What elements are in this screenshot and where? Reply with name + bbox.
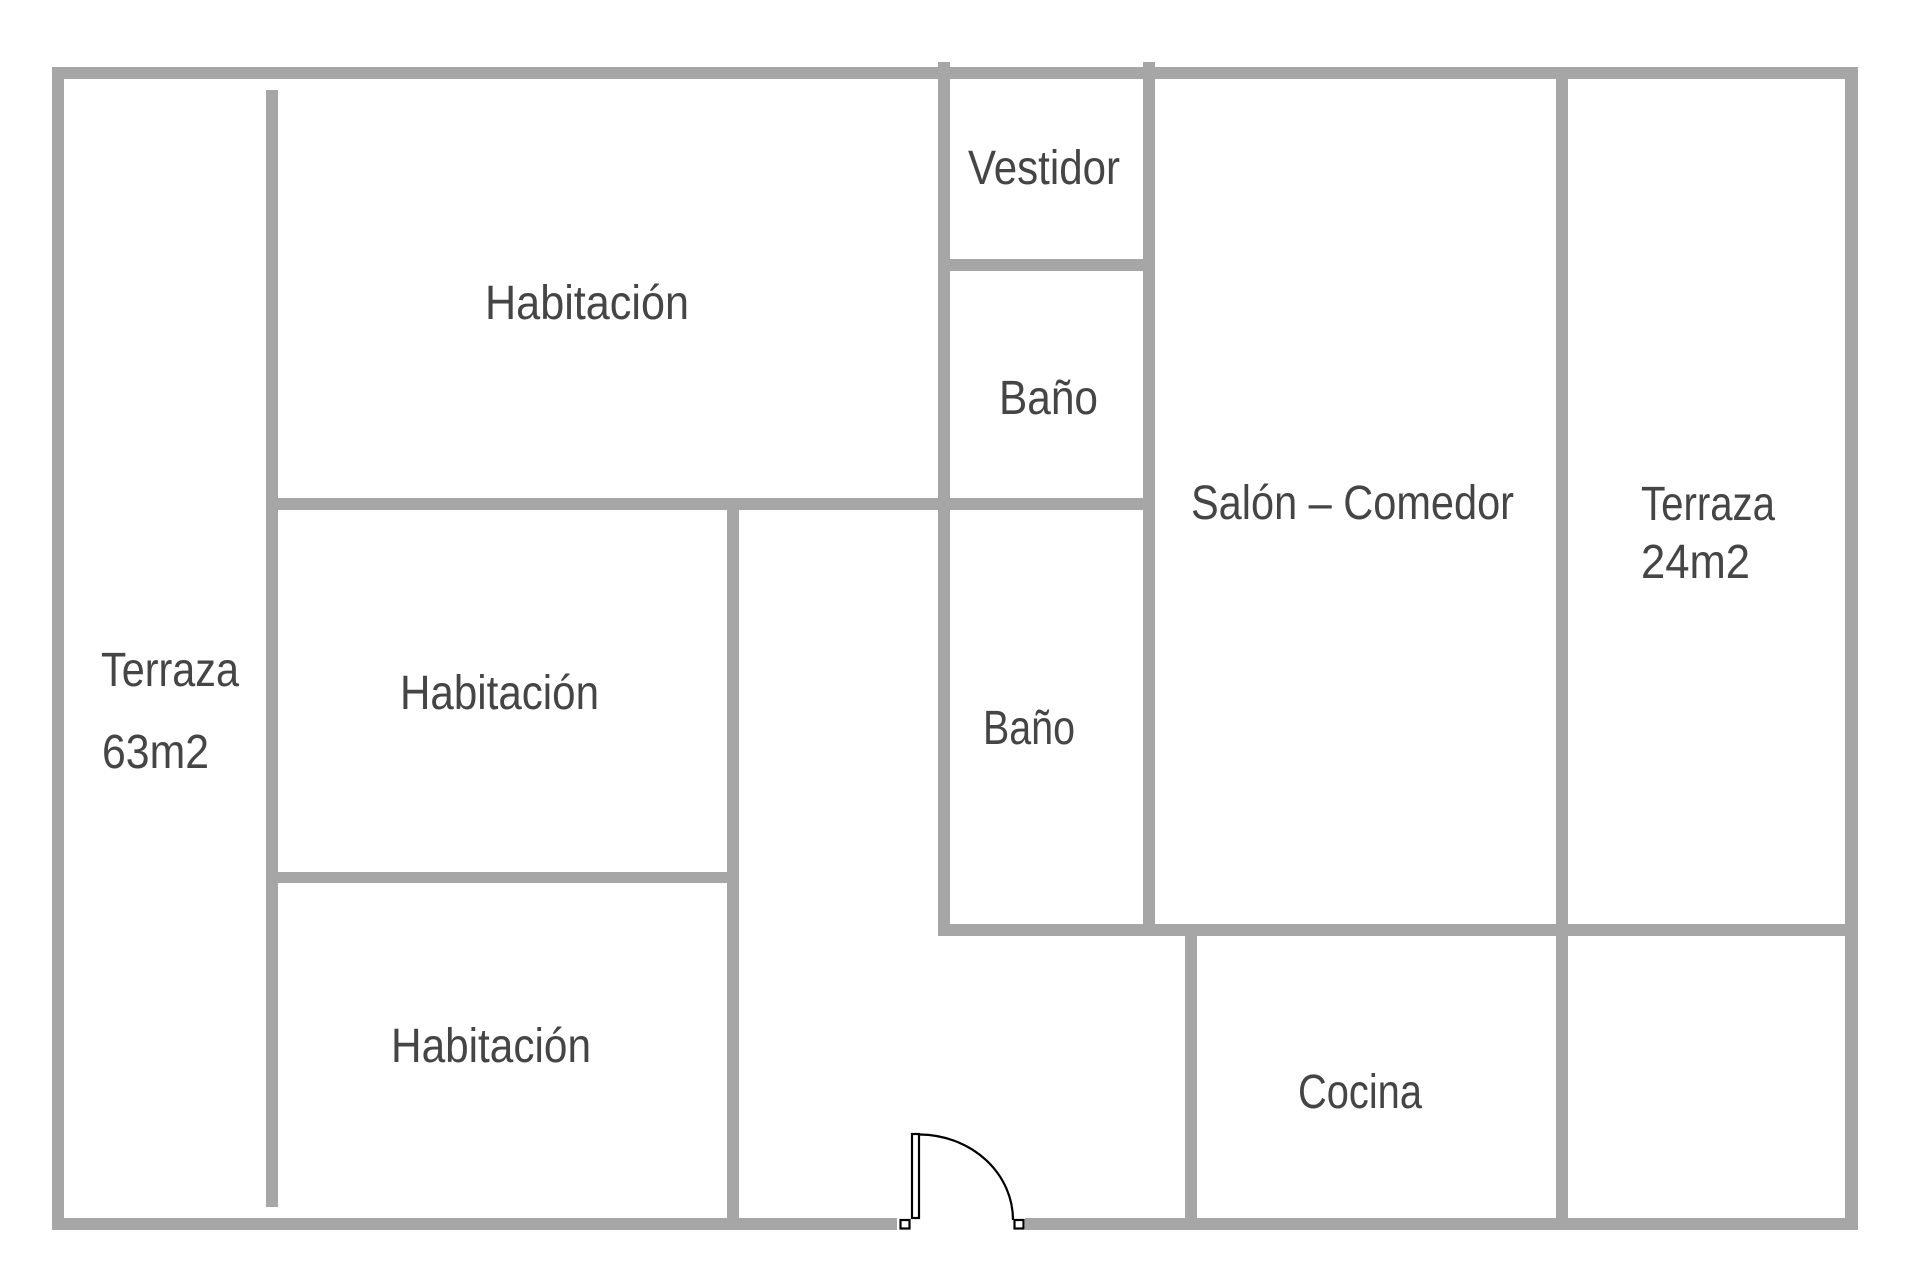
svg-text:Terraza: Terraza: [1641, 477, 1775, 531]
svg-text:Salón – Comedor: Salón – Comedor: [1191, 476, 1514, 530]
svg-text:63m2: 63m2: [102, 725, 209, 779]
svg-text:Habitación: Habitación: [400, 666, 599, 720]
svg-text:Baño: Baño: [999, 371, 1098, 425]
svg-text:Habitación: Habitación: [391, 1019, 591, 1073]
svg-text:Habitación: Habitación: [485, 276, 689, 330]
svg-text:Vestidor: Vestidor: [968, 141, 1120, 195]
svg-text:Terraza: Terraza: [101, 643, 239, 697]
svg-text:Cocina: Cocina: [1298, 1065, 1422, 1119]
svg-text:Baño: Baño: [983, 701, 1075, 755]
svg-text:24m2: 24m2: [1641, 535, 1750, 589]
